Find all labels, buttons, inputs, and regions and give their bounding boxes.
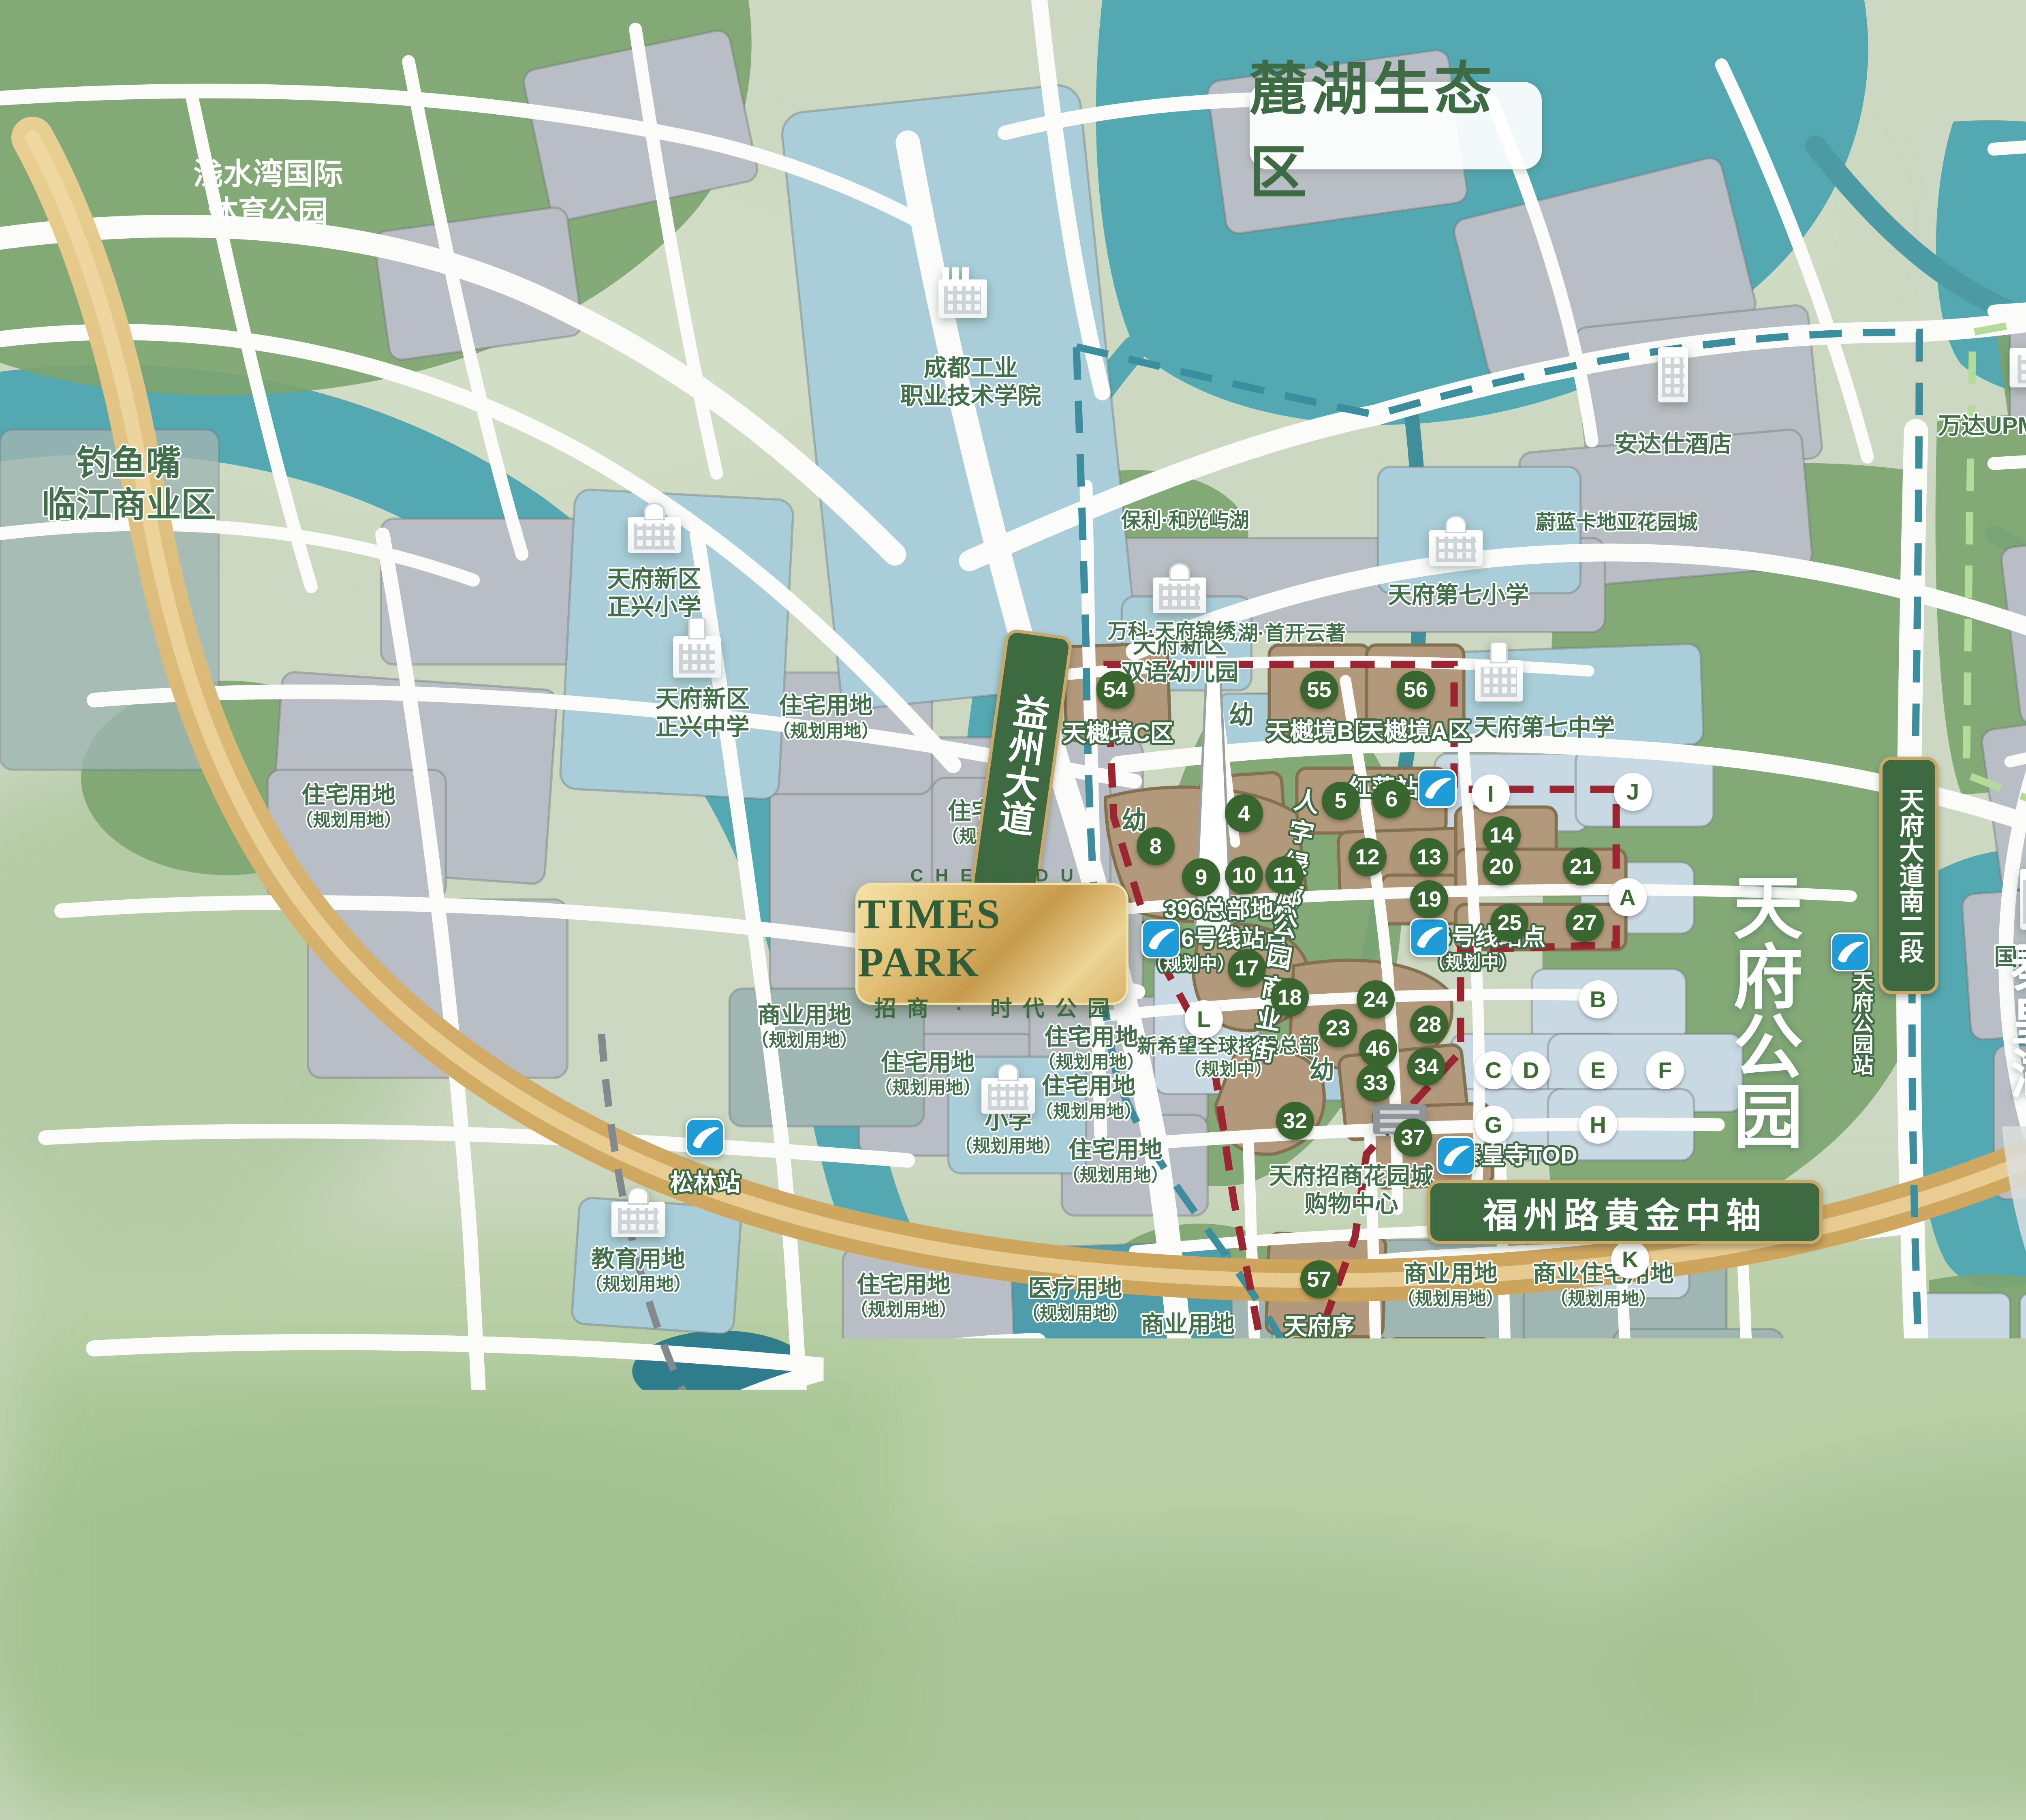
region-luhu-label: 麓湖生态区 — [1250, 42, 1542, 209]
disclaimer: 本宣传资料为要约邀请，内附所有资料(含图片、文字表达等)仅供参考，不构成合同内容… — [1218, 1800, 2026, 1814]
region-luhu-box: 麓湖生态区 — [1250, 82, 1542, 169]
badge-name: TIMES PARK — [858, 890, 1126, 986]
road-badge-tianfu: 天府大道南二段 — [1879, 757, 1938, 994]
title-badge: CHENGDU TIMES PARK 招商 · 时代公园 — [855, 883, 1128, 1005]
road-badge-fuzhou: 福州路黄金中轴 — [1427, 1180, 1823, 1244]
map-poster: 成都工业 职业技术学院 保利·和光屿湖 天府新区 双语幼儿园 龙湖·首开云著 安… — [0, 0, 2026, 1820]
badge-cn: 招商 · 时代公园 — [864, 990, 1120, 1022]
badge-city: CHENGDU — [898, 866, 1086, 886]
